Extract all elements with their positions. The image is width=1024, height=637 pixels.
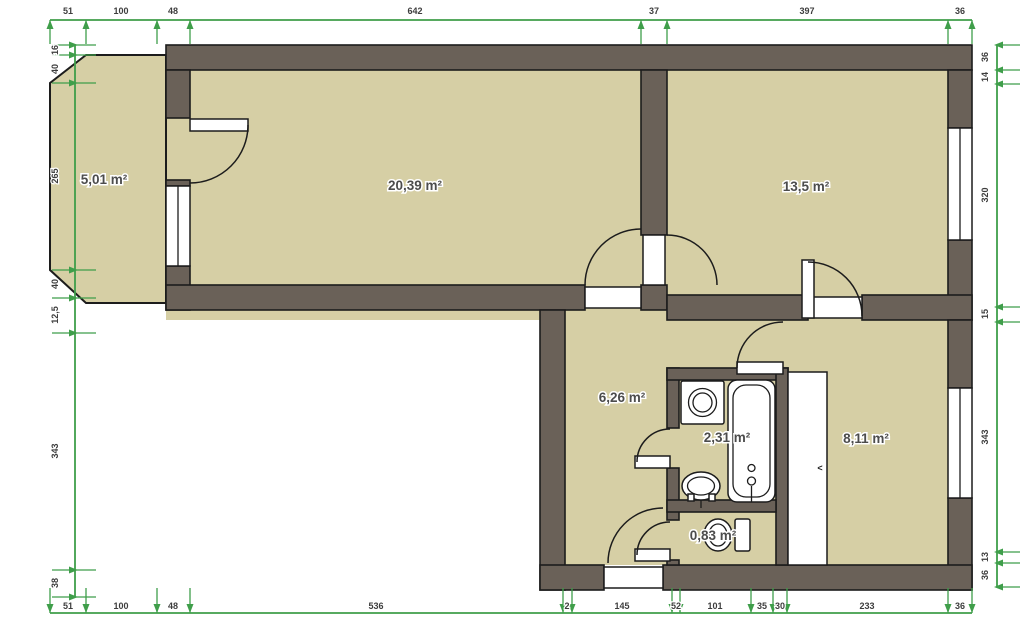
dimension-value: 101 (707, 601, 722, 611)
door-leaf-wc (635, 549, 670, 561)
door-leaf-living-bedroom (643, 235, 665, 285)
floor-plan: < 5,01 m² 20,39 m² (0, 0, 1024, 637)
dimension-value: 16 (50, 45, 60, 55)
dimension-arrowhead (994, 304, 1003, 311)
dimension-arrowhead (83, 604, 90, 613)
room-area-label-hallway: 6,26 m² (599, 390, 646, 405)
dimension-arrowhead (569, 604, 576, 613)
closet: < (788, 372, 827, 565)
dimension-value: 100 (113, 6, 128, 16)
door-leaf-bedroom (802, 260, 814, 318)
wall-right-c (948, 320, 972, 388)
dimension-value: 2 (564, 601, 569, 611)
dimension-arrowhead (187, 604, 194, 613)
closet-direction-marker: < (817, 463, 822, 473)
dimension-line-right: 3614320153431336 (980, 42, 1020, 591)
dimension-arrowhead (969, 604, 976, 613)
dimension-value: 40 (50, 64, 60, 74)
wall-left-mid (166, 180, 190, 186)
room-area-label-living-room: 20,39 m² (388, 178, 443, 193)
toilet-tank (735, 519, 750, 551)
dimension-arrowhead (69, 52, 78, 59)
dimension-arrowhead (154, 604, 161, 613)
dimension-line-bottom: 5110048536214552101353023336 (47, 588, 976, 613)
dimension-arrowhead (748, 604, 755, 613)
dimension-value: 35 (757, 601, 767, 611)
dimension-arrowhead (945, 604, 952, 613)
washing-machine (681, 381, 724, 424)
door-leaf-bathroom (635, 456, 670, 468)
dimension-value: 320 (980, 187, 990, 202)
wall-divider-upper (641, 70, 667, 235)
wall-bottom-b (663, 565, 972, 590)
dimension-value: 397 (799, 6, 814, 16)
floor-plan-page: < 5,01 m² 20,39 m² (0, 0, 1024, 637)
dimension-value: 36 (955, 601, 965, 611)
dimension-arrowhead (69, 594, 78, 601)
dimension-value: 343 (50, 443, 60, 458)
dimension-arrowhead (69, 567, 78, 574)
door-leaf-room-right (737, 362, 783, 374)
dimension-value: 12,5 (50, 306, 60, 324)
washing-machine-body (681, 381, 724, 424)
dimension-value: 36 (955, 6, 965, 16)
dimension-arrowhead (69, 330, 78, 337)
dimension-arrowhead (69, 42, 78, 49)
dimension-arrowhead (994, 42, 1003, 49)
dimension-arrowhead (994, 584, 1003, 591)
room-area-label-bathroom: 2,31 m² (704, 430, 751, 445)
room-area-label-wc: 0,83 m² (690, 528, 737, 543)
wall-livingroom-bottom (166, 285, 585, 310)
dimension-arrowhead (83, 20, 90, 29)
dimension-value: 48 (168, 6, 178, 16)
door-leaf-entry (604, 567, 663, 588)
dimension-value: 48 (168, 601, 178, 611)
wall-divider-lower (641, 285, 667, 310)
dimension-value: 40 (50, 279, 60, 289)
wall-bedroom-bottom-a (667, 295, 808, 320)
wall-right-a (948, 70, 972, 128)
dimension-arrowhead (994, 319, 1003, 326)
room-area-label-room-right: 8,11 m² (843, 431, 889, 446)
dimension-value: 13 (980, 552, 990, 562)
room-area-label-balcony: 5,01 m² (81, 172, 128, 187)
wall-bottom-a (540, 565, 604, 590)
dimension-arrowhead (47, 20, 54, 29)
door-leaf-bedroom-gap (808, 297, 862, 318)
dimension-value: 642 (407, 6, 422, 16)
dimension-arrowhead (187, 20, 194, 29)
wall-left-upper (166, 70, 190, 118)
dimension-arrowhead (994, 560, 1003, 567)
wall-bedroom-bottom-b (862, 295, 972, 320)
dimension-arrowhead (154, 20, 161, 29)
dimension-arrowhead (664, 20, 671, 29)
door-leaf-living-hall (585, 287, 641, 308)
wall-top (166, 45, 972, 70)
dimension-value: 536 (368, 601, 383, 611)
dimension-line-top: 51100486423739736 (47, 6, 976, 44)
dimension-value: 30 (775, 601, 785, 611)
upper-block-floor (166, 45, 972, 320)
dimension-value: 265 (50, 168, 60, 183)
room-area-label-bedroom: 13,5 m² (783, 179, 830, 194)
dimension-arrowhead (945, 20, 952, 29)
dimension-value: 343 (980, 429, 990, 444)
dimension-value: 100 (113, 601, 128, 611)
dimension-value: 233 (859, 601, 874, 611)
dimension-arrowhead (969, 20, 976, 29)
dimension-arrowhead (994, 67, 1003, 74)
dimension-value: 145 (614, 601, 629, 611)
window-room-right (948, 388, 972, 498)
dimension-value: 37 (649, 6, 659, 16)
dimension-arrowhead (638, 20, 645, 29)
dimension-value: 15 (980, 309, 990, 319)
dimension-arrowhead (994, 549, 1003, 556)
dimension-value: 14 (980, 72, 990, 82)
dimension-value: 52 (671, 601, 681, 611)
dimension-value: 51 (63, 6, 73, 16)
dimension-value: 38 (50, 578, 60, 588)
dimension-arrowhead (47, 604, 54, 613)
dimension-value: 36 (980, 570, 990, 580)
dimension-arrowhead (994, 81, 1003, 88)
window-balcony (166, 186, 190, 266)
wall-hallway-left (540, 310, 565, 590)
dimension-value: 51 (63, 601, 73, 611)
window-bedroom (948, 128, 972, 240)
sink-tap-right (709, 494, 715, 501)
dimension-value: 36 (980, 52, 990, 62)
sink-tap-left (688, 494, 694, 501)
wall-bath-right (776, 368, 788, 565)
door-leaf-balcony (190, 119, 248, 131)
